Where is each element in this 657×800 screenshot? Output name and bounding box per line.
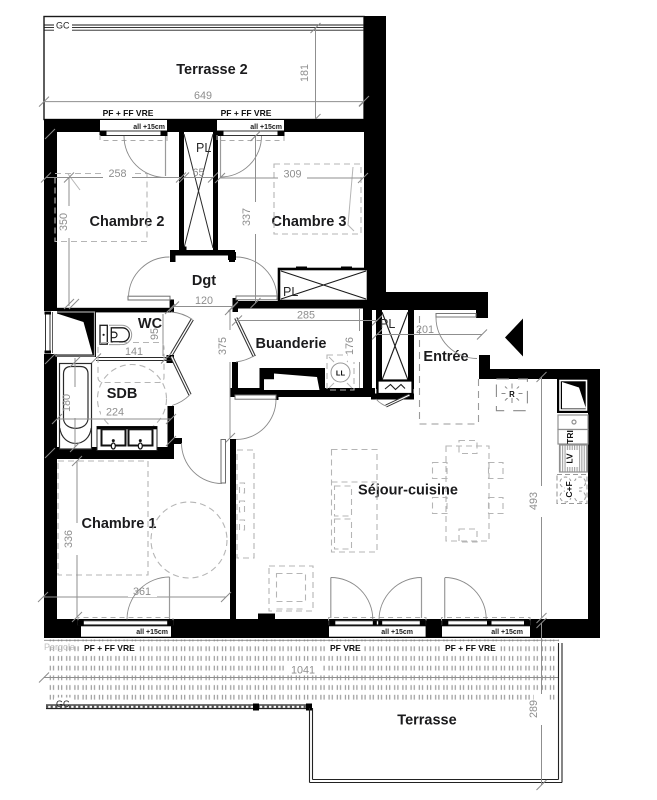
- svg-text:309: 309: [283, 169, 301, 181]
- svg-text:PL: PL: [380, 317, 395, 331]
- svg-text:181: 181: [299, 64, 311, 82]
- svg-text:all +15cm: all +15cm: [136, 629, 168, 636]
- svg-text:LL: LL: [336, 369, 346, 378]
- svg-text:Séjour-cuisine: Séjour-cuisine: [358, 483, 458, 499]
- svg-text:336: 336: [63, 530, 75, 548]
- svg-text:375: 375: [217, 337, 229, 355]
- svg-text:Pergola: Pergola: [44, 642, 75, 652]
- svg-text:all +15cm: all +15cm: [491, 629, 523, 636]
- svg-text:Chambre 3: Chambre 3: [272, 214, 347, 230]
- svg-text:GC: GC: [56, 21, 70, 31]
- svg-text:120: 120: [195, 295, 213, 307]
- svg-text:PF + FF VRE: PF + FF VRE: [445, 643, 496, 653]
- svg-text:PL: PL: [196, 141, 211, 155]
- svg-text:PF + FF VRE: PF + FF VRE: [84, 643, 135, 653]
- svg-text:all +15cm: all +15cm: [250, 124, 282, 131]
- svg-text:LV: LV: [565, 453, 575, 464]
- svg-text:361: 361: [133, 586, 151, 598]
- svg-text:65: 65: [192, 167, 204, 179]
- svg-text:all +15cm: all +15cm: [381, 629, 413, 636]
- svg-text:224: 224: [106, 407, 124, 419]
- svg-text:Chambre 1: Chambre 1: [82, 516, 157, 532]
- svg-text:Terrasse: Terrasse: [397, 713, 456, 729]
- svg-text:649: 649: [194, 90, 212, 102]
- svg-text:289: 289: [528, 700, 540, 718]
- svg-text:201: 201: [416, 324, 434, 336]
- svg-text:180: 180: [61, 394, 73, 412]
- svg-text:Chambre 2: Chambre 2: [90, 214, 165, 230]
- svg-text:PF + FF VRE: PF + FF VRE: [221, 108, 272, 118]
- svg-text:PF VRE: PF VRE: [330, 643, 361, 653]
- svg-text:258: 258: [108, 168, 126, 180]
- svg-text:285: 285: [297, 310, 315, 322]
- svg-text:PF + FF VRE: PF + FF VRE: [103, 108, 154, 118]
- svg-text:C+F: C+F: [564, 481, 574, 497]
- svg-text:176: 176: [344, 337, 356, 355]
- svg-text:all +15cm: all +15cm: [133, 124, 165, 131]
- svg-text:493: 493: [528, 492, 540, 510]
- svg-text:1041: 1041: [291, 665, 315, 677]
- svg-text:PL: PL: [283, 285, 298, 299]
- svg-text:TRI: TRI: [565, 430, 575, 444]
- svg-text:141: 141: [125, 346, 143, 358]
- svg-text:R: R: [509, 390, 515, 399]
- svg-text:337: 337: [241, 208, 253, 226]
- svg-text:Entrée: Entrée: [423, 349, 468, 365]
- svg-text:SDB: SDB: [107, 386, 138, 402]
- svg-text:95: 95: [149, 328, 161, 340]
- svg-text:350: 350: [58, 213, 70, 231]
- svg-text:Dgt: Dgt: [192, 273, 216, 289]
- svg-text:GC: GC: [56, 699, 70, 709]
- svg-text:Buanderie: Buanderie: [256, 336, 327, 352]
- svg-text:Terrasse 2: Terrasse 2: [176, 62, 247, 78]
